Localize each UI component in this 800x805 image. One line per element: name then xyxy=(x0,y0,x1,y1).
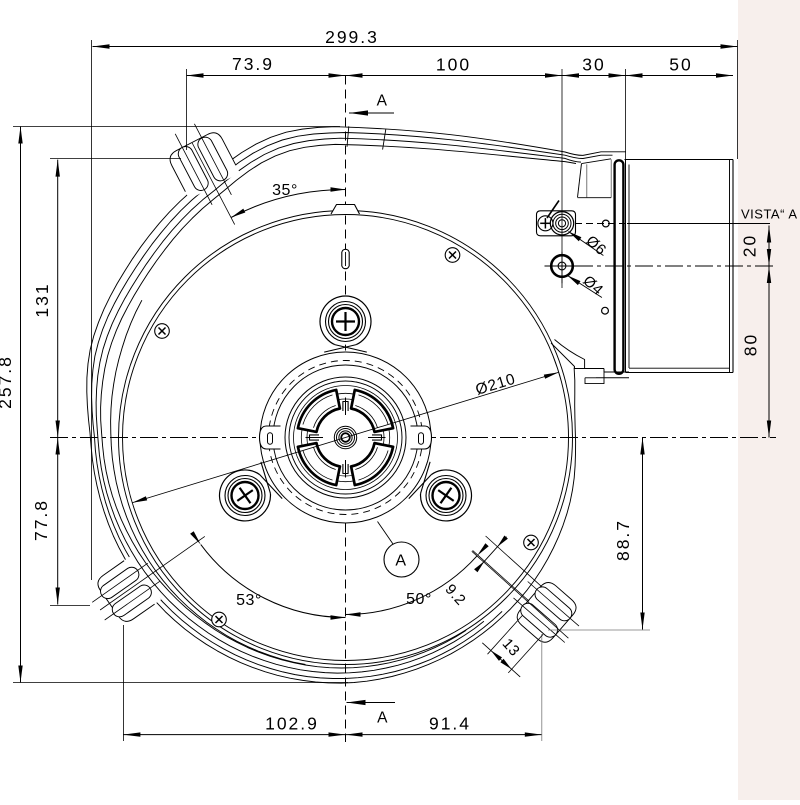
svg-text:50°: 50° xyxy=(406,591,432,608)
svg-text:77.8: 77.8 xyxy=(31,499,51,541)
svg-text:VISTA“ A ”: VISTA“ A ” xyxy=(741,207,800,222)
svg-text:131: 131 xyxy=(32,282,52,317)
svg-text:30: 30 xyxy=(582,55,605,75)
svg-text:A: A xyxy=(377,93,389,110)
svg-text:257.8: 257.8 xyxy=(0,355,15,409)
svg-text:80: 80 xyxy=(741,333,761,356)
svg-text:73.9: 73.9 xyxy=(232,54,274,74)
svg-text:50: 50 xyxy=(669,55,692,75)
svg-text:299.3: 299.3 xyxy=(325,27,379,47)
svg-text:91.4: 91.4 xyxy=(429,714,471,734)
svg-text:88.7: 88.7 xyxy=(613,519,633,561)
svg-text:20: 20 xyxy=(740,234,760,257)
svg-text:53°: 53° xyxy=(236,592,262,609)
svg-text:35°: 35° xyxy=(272,182,298,199)
svg-text:A: A xyxy=(395,553,407,570)
svg-text:A: A xyxy=(377,710,389,727)
svg-text:100: 100 xyxy=(436,55,471,75)
svg-text:102.9: 102.9 xyxy=(265,714,319,734)
